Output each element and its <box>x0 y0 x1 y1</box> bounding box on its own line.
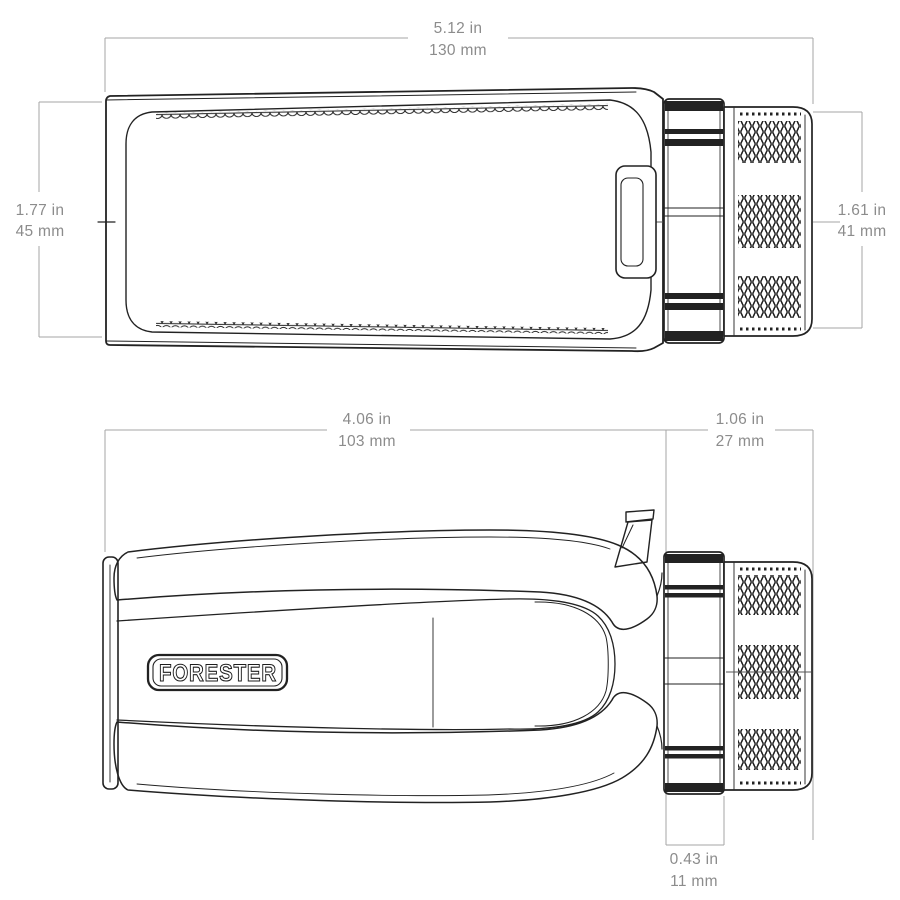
monocular-dimension-diagram: FORESTER 5.12 in 130 mm <box>0 0 900 900</box>
side-knurl-patch-3 <box>738 729 801 770</box>
dim-eyepiece-height-in: 1.61 in <box>838 202 887 219</box>
top-view-drawing <box>98 88 812 351</box>
brand-label: FORESTER <box>159 660 277 687</box>
dim-eyepiece-assembly-mm: 27 mm <box>716 433 765 450</box>
top-knurl-patch-2 <box>738 195 801 248</box>
top-knurl-patch-1 <box>738 121 801 163</box>
side-lever <box>615 510 654 567</box>
top-eyepiece <box>724 107 812 336</box>
dim-focus-ring-mm: 11 mm <box>670 873 718 890</box>
dim-overall-length-in: 5.12 in <box>434 20 483 37</box>
dim-focus-ring-in: 0.43 in <box>670 851 719 868</box>
side-objective-cap <box>103 557 118 789</box>
technical-drawing-page: FORESTER 5.12 in 130 mm <box>0 0 900 900</box>
side-view-drawing: FORESTER <box>103 510 812 803</box>
top-body-shell <box>106 88 663 351</box>
side-focus-ring <box>664 552 724 794</box>
side-knurl-patch-1 <box>738 575 801 615</box>
side-upper-grip <box>114 530 657 629</box>
dim-body-length-in: 4.06 in <box>343 411 392 428</box>
dim-overall-length-mm: 130 mm <box>429 42 487 59</box>
dim-body-height-in: 1.77 in <box>16 202 65 219</box>
dim-eyepiece-assembly-in: 1.06 in <box>716 411 765 428</box>
dim-eyepiece-height-mm: 41 mm <box>838 223 887 240</box>
top-clip <box>616 166 656 278</box>
dim-body-length-mm: 103 mm <box>338 433 396 450</box>
top-focus-ring <box>664 99 724 343</box>
side-eyepiece <box>724 562 812 790</box>
top-knurl-patch-3 <box>738 276 801 318</box>
brand-badge: FORESTER <box>148 655 287 690</box>
dim-body-height-mm: 45 mm <box>16 223 65 240</box>
